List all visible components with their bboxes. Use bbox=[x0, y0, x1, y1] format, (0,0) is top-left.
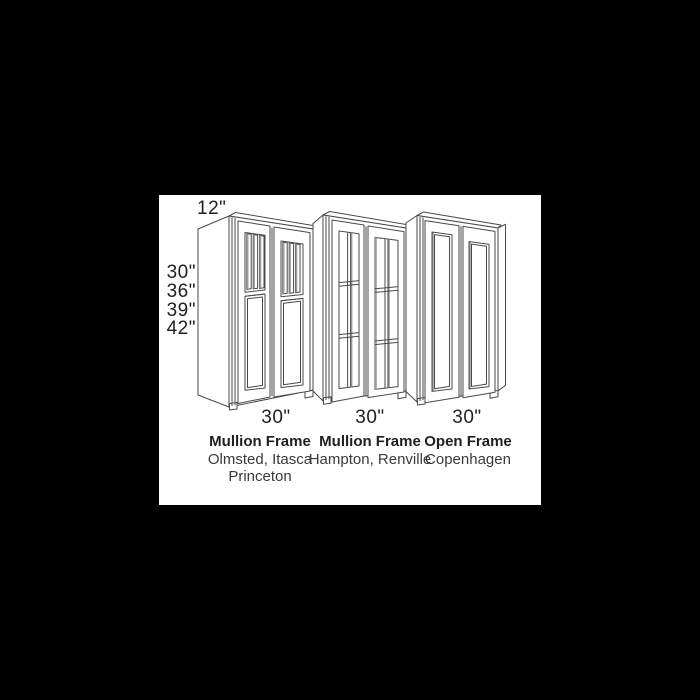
cabinet-3-open-frame-drawing bbox=[406, 212, 506, 405]
frame-type-label: Open Frame bbox=[398, 433, 538, 451]
depth-dimension-label: 12" bbox=[197, 198, 226, 220]
width-label-cabinet-3: 30" bbox=[427, 407, 507, 429]
style-names-line: Princeton bbox=[190, 468, 330, 486]
style-names-line: Copenhagen bbox=[398, 451, 538, 469]
height-label-30: 30" bbox=[163, 264, 196, 283]
height-label-36: 36" bbox=[163, 283, 196, 302]
caption-cabinet-3: Open Frame Copenhagen bbox=[398, 433, 538, 468]
cabinet-1-mullion-frame-drawing bbox=[198, 213, 316, 411]
cabinet-2-mullion-frame-drawing bbox=[313, 212, 409, 405]
black-background: 12" 30" 36" 39" 42" 30" 30" 30" Mullion … bbox=[0, 0, 700, 700]
width-label-cabinet-2: 30" bbox=[330, 407, 410, 429]
diagram-panel: 12" 30" 36" 39" 42" 30" 30" 30" Mullion … bbox=[159, 195, 541, 505]
height-label-42: 42" bbox=[163, 320, 196, 339]
width-label-cabinet-1: 30" bbox=[236, 407, 316, 429]
height-dimension-labels: 30" 36" 39" 42" bbox=[163, 264, 196, 339]
